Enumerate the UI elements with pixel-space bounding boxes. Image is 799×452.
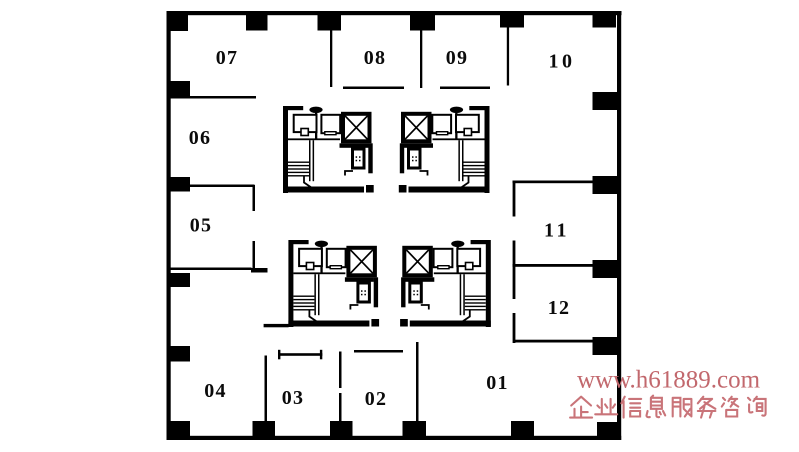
svg-text:06: 06: [189, 127, 211, 149]
svg-text:11: 11: [544, 220, 570, 242]
svg-text:04: 04: [204, 380, 226, 402]
svg-text:08: 08: [364, 47, 386, 69]
svg-text:05: 05: [190, 215, 212, 237]
svg-text:02: 02: [365, 388, 387, 410]
svg-text:12: 12: [548, 297, 570, 319]
svg-text:10: 10: [549, 51, 576, 73]
svg-text:07: 07: [216, 47, 238, 69]
svg-text:www.h61889.com: www.h61889.com: [577, 367, 761, 394]
svg-text:01: 01: [486, 372, 508, 394]
svg-text:09: 09: [446, 47, 468, 69]
svg-text:03: 03: [282, 387, 304, 409]
